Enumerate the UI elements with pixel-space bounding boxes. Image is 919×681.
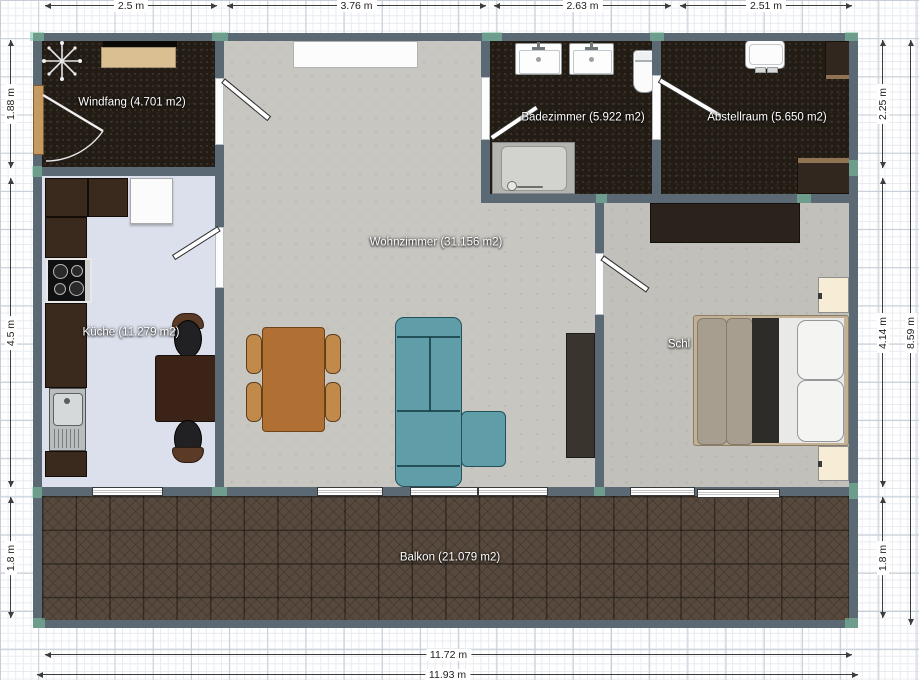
tub-foot: [755, 67, 766, 73]
dining-chair[interactable]: [246, 334, 262, 374]
wall-balcony-bottom[interactable]: [33, 620, 858, 628]
dimension-top-abstellraum: 2.51 m: [680, 5, 852, 6]
corner-marker: [849, 160, 858, 176]
nightstand-handle: [818, 293, 822, 299]
dimension-right-total: 8.59 m: [910, 40, 911, 625]
kitchen-table[interactable]: [155, 355, 217, 422]
dimension-top-badezimmer: 2.63 m: [494, 5, 671, 6]
dimension-top-wohnzimmer: 3.76 m: [227, 5, 486, 6]
sofa-cushion-line: [397, 410, 460, 412]
bathroom-sink[interactable]: [569, 43, 614, 75]
corner-marker: [849, 483, 858, 499]
dining-chair[interactable]: [325, 382, 341, 422]
bed-pillow: [797, 380, 844, 442]
sofa-armrest-line: [397, 465, 460, 467]
cabinet-front: [826, 75, 849, 79]
bathroom-sink[interactable]: [515, 43, 562, 75]
sofa-chaise[interactable]: [461, 411, 506, 467]
faucet-icon: [537, 42, 540, 49]
corner-marker: [797, 194, 811, 203]
door-opening-schlafzimmer[interactable]: [595, 253, 604, 315]
shower-head-icon: [507, 181, 517, 191]
corner-marker: [32, 166, 42, 177]
dimension-bottom-outer: 11.93 m: [37, 674, 858, 675]
cabinet-front: [798, 158, 849, 163]
corner-marker: [596, 194, 607, 203]
dining-chair[interactable]: [246, 382, 262, 422]
floor-plan-canvas[interactable]: 2.5 m 3.76 m 2.63 m 2.51 m 1.88 m 4.5 m …: [0, 0, 919, 680]
kitchen-counter[interactable]: [45, 217, 87, 258]
room-label-windfang: Windfang (4.701 m2): [78, 97, 185, 110]
corner-marker: [32, 487, 42, 498]
tub-inner: [749, 44, 783, 65]
sink-inner: [519, 50, 560, 74]
corner-marker: [650, 32, 664, 41]
kitchen-counter[interactable]: [88, 178, 128, 217]
burner: [54, 283, 66, 295]
faucet-icon: [590, 42, 593, 49]
kitchen-counter[interactable]: [45, 303, 87, 388]
room-label-schlafzimmer: Schl: [668, 339, 690, 352]
window-wohnzimmer[interactable]: [317, 487, 383, 496]
doormat[interactable]: [101, 47, 176, 68]
corner-marker: [845, 32, 858, 41]
kitchen-counter[interactable]: [45, 451, 87, 477]
room-label-kueche: Küche (11.279 m2): [83, 327, 180, 340]
dining-chair[interactable]: [325, 334, 341, 374]
bed-blanket: [697, 318, 727, 445]
burner: [71, 265, 83, 277]
tv-sideboard[interactable]: [566, 333, 595, 458]
nightstand[interactable]: [818, 446, 849, 481]
burner: [69, 281, 84, 296]
sink-inner: [573, 50, 612, 74]
sideboard[interactable]: [293, 41, 418, 68]
sink-drainer: [54, 429, 81, 448]
kitchen-sink[interactable]: [49, 388, 86, 451]
bed-dark-throw: [752, 318, 779, 443]
corner-marker: [594, 487, 605, 496]
window-schlafzimmer[interactable]: [697, 489, 780, 498]
door-opening-abstellraum[interactable]: [652, 75, 661, 140]
room-label-abstellraum: Abstellraum (5.650 m2): [707, 112, 827, 125]
dimension-left-windfang: 1.88 m: [10, 40, 11, 168]
storage-cabinet[interactable]: [797, 158, 850, 194]
shower-hose-icon: [517, 186, 543, 188]
dimension-right-balkon: 1.8 m: [882, 497, 883, 618]
fridge[interactable]: [130, 178, 173, 224]
window-wohnzimmer[interactable]: [410, 487, 478, 496]
dimension-left-balkon: 1.8 m: [10, 497, 11, 618]
corner-marker: [845, 618, 858, 628]
dimension-right-schlafzimmer: 4.14 m: [882, 178, 883, 487]
room-label-wohnzimmer: Wohnzimmer (31.156 m2): [370, 237, 503, 250]
stove[interactable]: [46, 258, 92, 303]
door-opening-windfang-wohnzimmer[interactable]: [215, 78, 224, 145]
window-kueche[interactable]: [92, 487, 163, 496]
kitchen-counter[interactable]: [45, 178, 88, 217]
nightstand-handle: [818, 461, 822, 467]
burner: [53, 264, 68, 279]
room-label-balkon: Balkon (21.079 m2): [400, 552, 500, 565]
tub-foot: [767, 67, 778, 73]
wall-wohn-schlaf[interactable]: [595, 194, 604, 496]
dimension-right-abstellraum: 2.25 m: [882, 40, 883, 168]
stove-panel: [85, 260, 90, 301]
room-label-badezimmer: Badezimmer (5.922 m2): [521, 112, 644, 125]
bed-pillow: [797, 320, 844, 380]
corner-marker: [482, 32, 502, 41]
laundry-tub[interactable]: [745, 40, 785, 69]
door-opening-badezimmer[interactable]: [481, 77, 490, 140]
drain-dot: [536, 57, 541, 62]
shower[interactable]: [492, 142, 575, 194]
drain-dot: [589, 57, 594, 62]
bed[interactable]: [693, 315, 849, 446]
corner-marker: [212, 32, 228, 41]
corner-marker: [30, 32, 44, 41]
wall-top[interactable]: [33, 33, 858, 41]
wardrobe[interactable]: [650, 203, 800, 243]
window-schlafzimmer[interactable]: [630, 487, 695, 496]
dimension-left-kueche: 4.5 m: [10, 178, 11, 487]
corner-marker: [33, 618, 45, 628]
dining-table[interactable]: [262, 327, 325, 432]
window-wohnzimmer[interactable]: [478, 487, 548, 496]
bed-blanket: [726, 318, 753, 445]
dimension-top-windfang: 2.5 m: [45, 5, 217, 6]
wall-right[interactable]: [849, 33, 858, 628]
dimension-bottom-inner: 11.72 m: [45, 654, 852, 655]
sofa-cushion-line: [429, 337, 431, 411]
nightstand[interactable]: [818, 277, 849, 313]
entry-door[interactable]: [33, 85, 44, 155]
storage-cabinet[interactable]: [825, 41, 850, 79]
wall-windfang-kueche[interactable]: [33, 167, 224, 176]
corner-marker: [212, 487, 227, 496]
door-opening-kueche[interactable]: [215, 227, 224, 288]
sink-faucet: [64, 398, 70, 404]
